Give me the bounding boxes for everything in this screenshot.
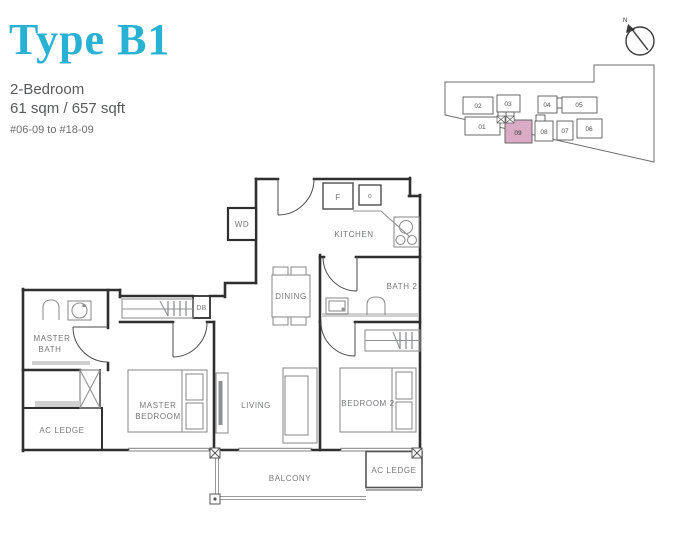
master-bath-label-2: BATH	[38, 345, 61, 354]
oven-label: o	[368, 193, 372, 200]
ac-ledge-right-label: AC LEDGE	[371, 466, 416, 475]
bedroom-count-label: 2-Bedroom	[10, 81, 84, 98]
north-arrow-icon: N	[623, 18, 654, 55]
unit-05-label: 05	[575, 102, 583, 109]
master-bedroom-label-2: BEDROOM	[135, 412, 181, 421]
living-label: LIVING	[241, 401, 271, 410]
floor-plan-page: Type B1 2-Bedroom 61 sqm / 657 sqft #06-…	[0, 0, 674, 534]
sofa	[283, 368, 317, 443]
cooktop	[394, 217, 419, 247]
page-title: Type B1	[9, 14, 170, 65]
db-label: DB	[196, 305, 206, 312]
master-bath-label-1: MASTER	[34, 334, 71, 343]
unit-04-label: 04	[543, 102, 551, 109]
master-toilet	[43, 300, 59, 320]
unit-09-label: 09	[514, 130, 522, 137]
shower	[80, 370, 100, 408]
units-range-label: #06-09 to #18-09	[10, 124, 94, 136]
area-label: 61 sqm / 657 sqft	[10, 100, 125, 117]
wd-label: WD	[235, 220, 250, 229]
key-plan: N 02 03	[435, 10, 670, 170]
unit-06-label: 06	[585, 126, 593, 133]
ac-ledge-left-label: AC LEDGE	[39, 426, 84, 435]
tv-console	[216, 373, 228, 433]
unit-02-label: 02	[474, 103, 482, 110]
bath2-fixtures	[321, 297, 418, 317]
bath2-label: BATH 2	[386, 282, 417, 291]
master-wardrobe	[122, 299, 193, 318]
room-labels: WD KITCHEN F o DINING BATH 2 DB MASTER B…	[34, 193, 418, 483]
unit-08-label: 08	[540, 129, 548, 136]
bedroom2-label: BEDROOM 2	[341, 399, 394, 408]
balcony-label: BALCONY	[269, 474, 311, 483]
bath2-toilet	[367, 297, 385, 315]
dining-label: DINING	[275, 292, 307, 301]
master-bath-fixtures	[32, 300, 100, 408]
bedroom2-wardrobe	[365, 330, 420, 351]
main-floor-plan: WD KITCHEN F o DINING BATH 2 DB MASTER B…	[10, 165, 455, 533]
north-label: N	[623, 18, 627, 24]
master-bedroom-label-1: MASTER	[140, 401, 177, 410]
kitchen-label: KITCHEN	[334, 230, 373, 239]
unit-03-label: 03	[504, 101, 512, 108]
fridge-label: F	[335, 193, 341, 202]
unit-07-label: 07	[561, 128, 569, 135]
unit-01-label: 01	[478, 124, 486, 131]
windows	[128, 448, 416, 451]
master-sink	[68, 301, 91, 320]
